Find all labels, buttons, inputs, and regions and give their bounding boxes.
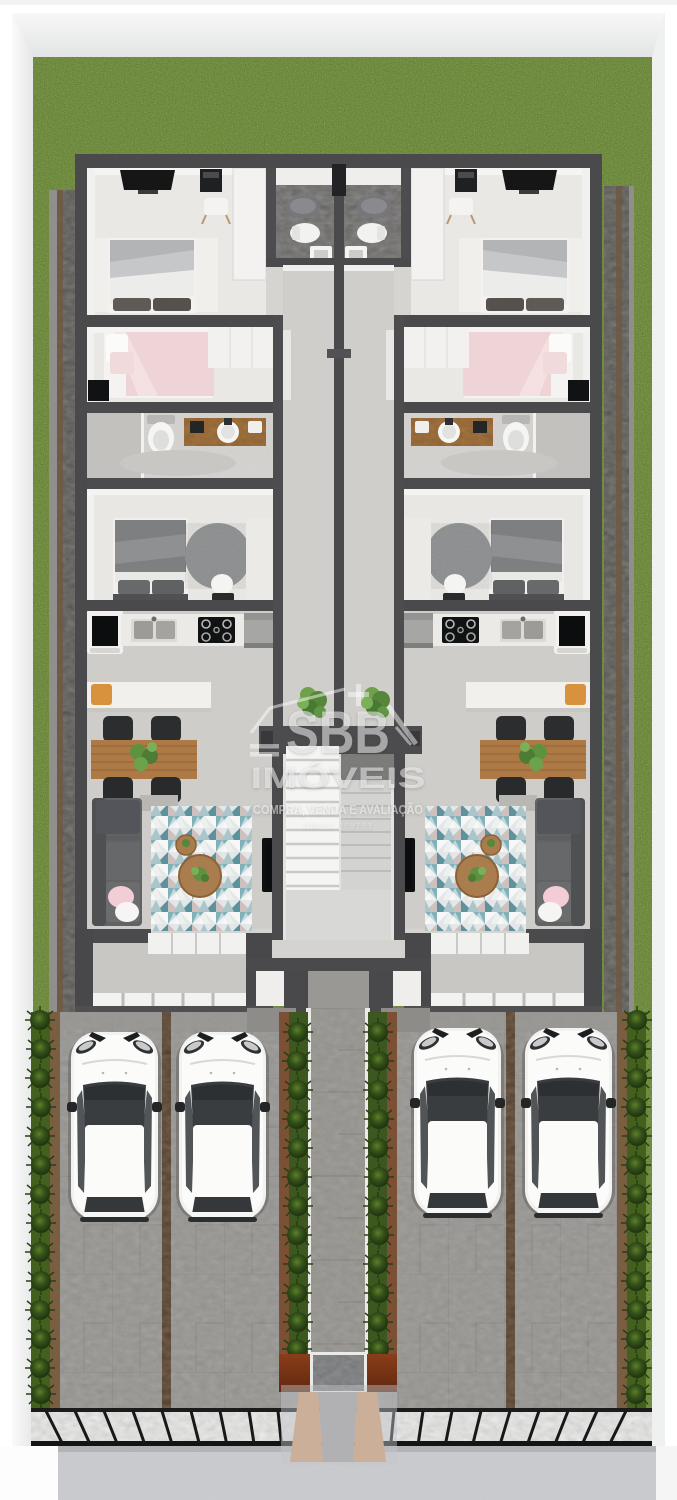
svg-text:IMÓVEIS: IMÓVEIS (251, 761, 426, 795)
svg-text:CRECI 258733: CRECI 258733 (303, 821, 372, 831)
svg-text:COMPRA, VENDA E AVALIAÇÃO: COMPRA, VENDA E AVALIAÇÃO (253, 802, 423, 817)
svg-text:SBB: SBB (286, 699, 390, 766)
